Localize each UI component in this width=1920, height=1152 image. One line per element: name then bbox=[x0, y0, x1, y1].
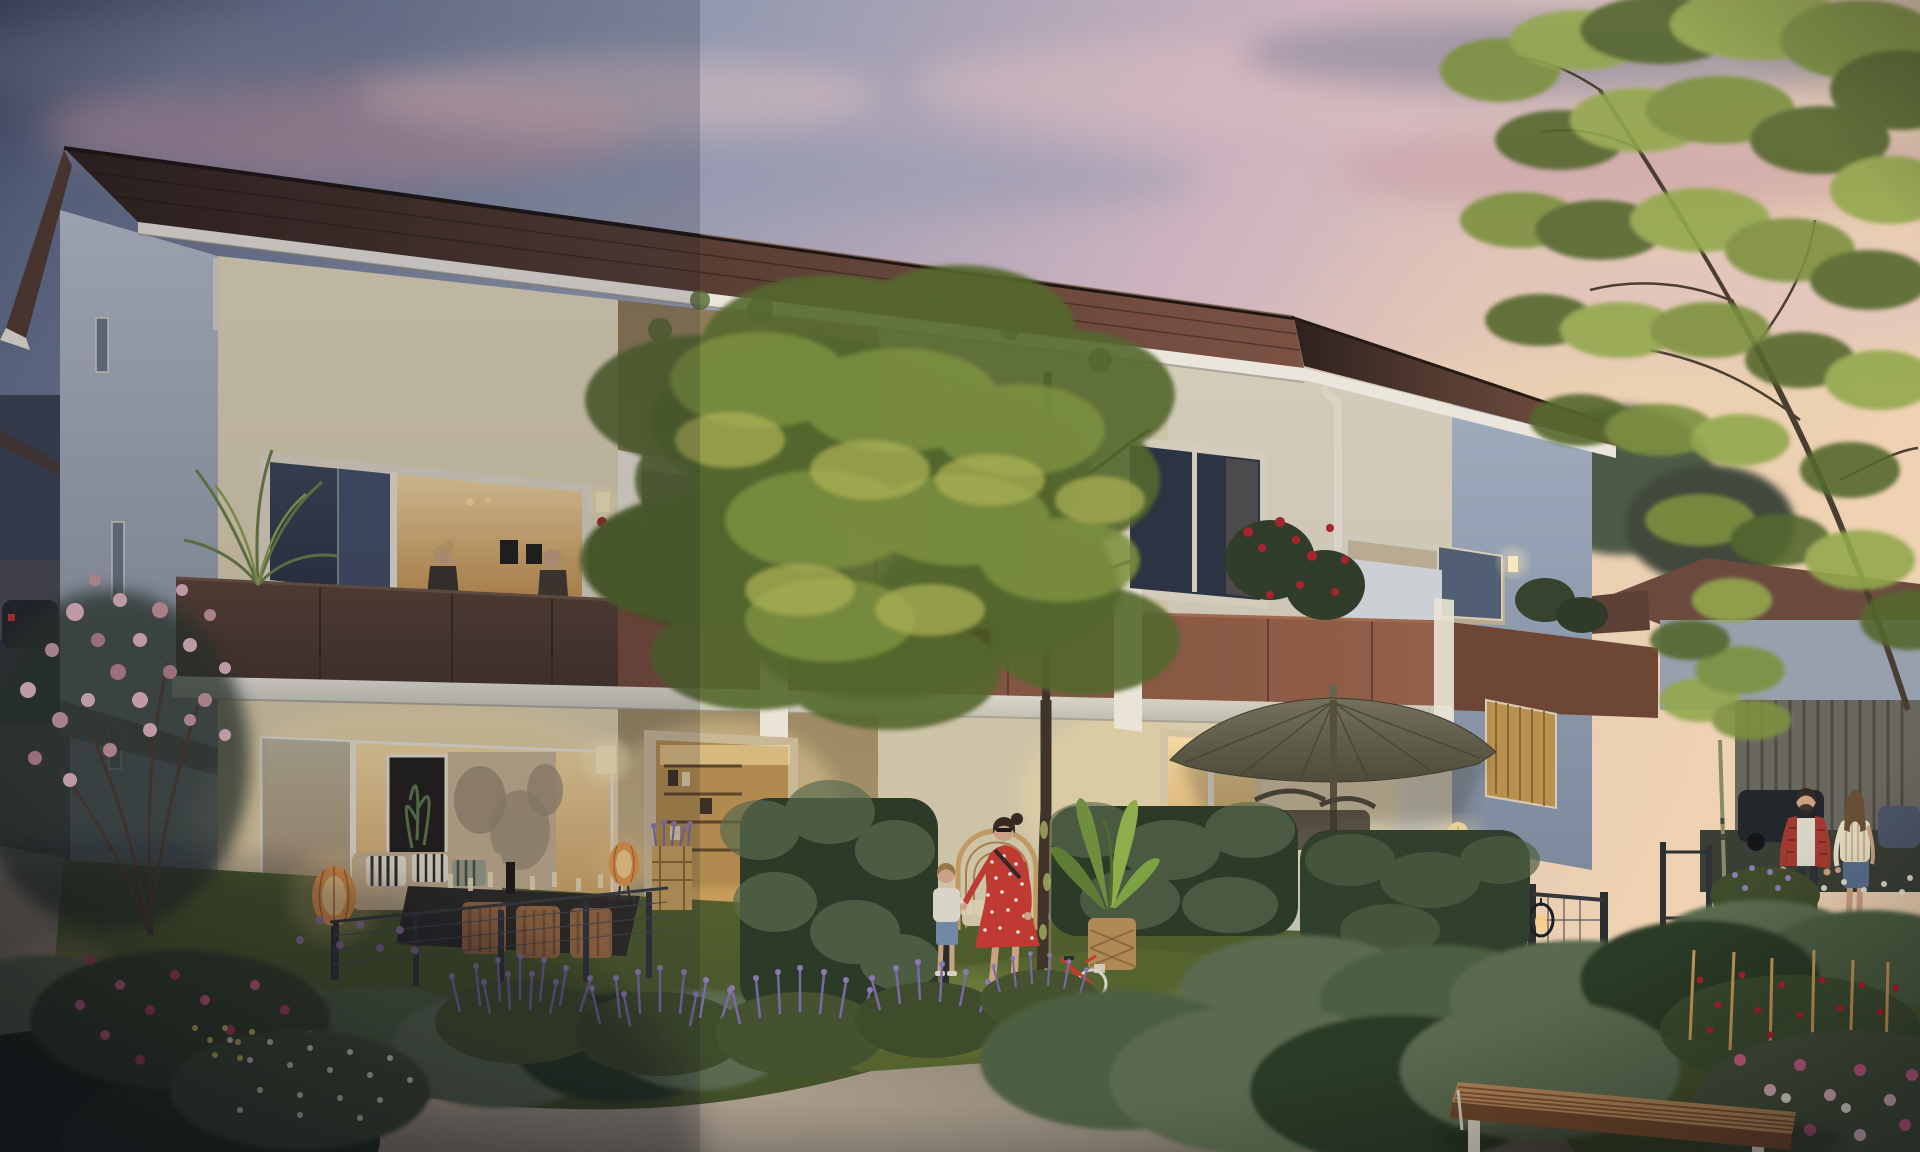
rendering-canvas bbox=[0, 0, 1920, 1152]
vignette bbox=[0, 0, 1920, 1152]
dusk-residence-illustration bbox=[0, 0, 1920, 1152]
